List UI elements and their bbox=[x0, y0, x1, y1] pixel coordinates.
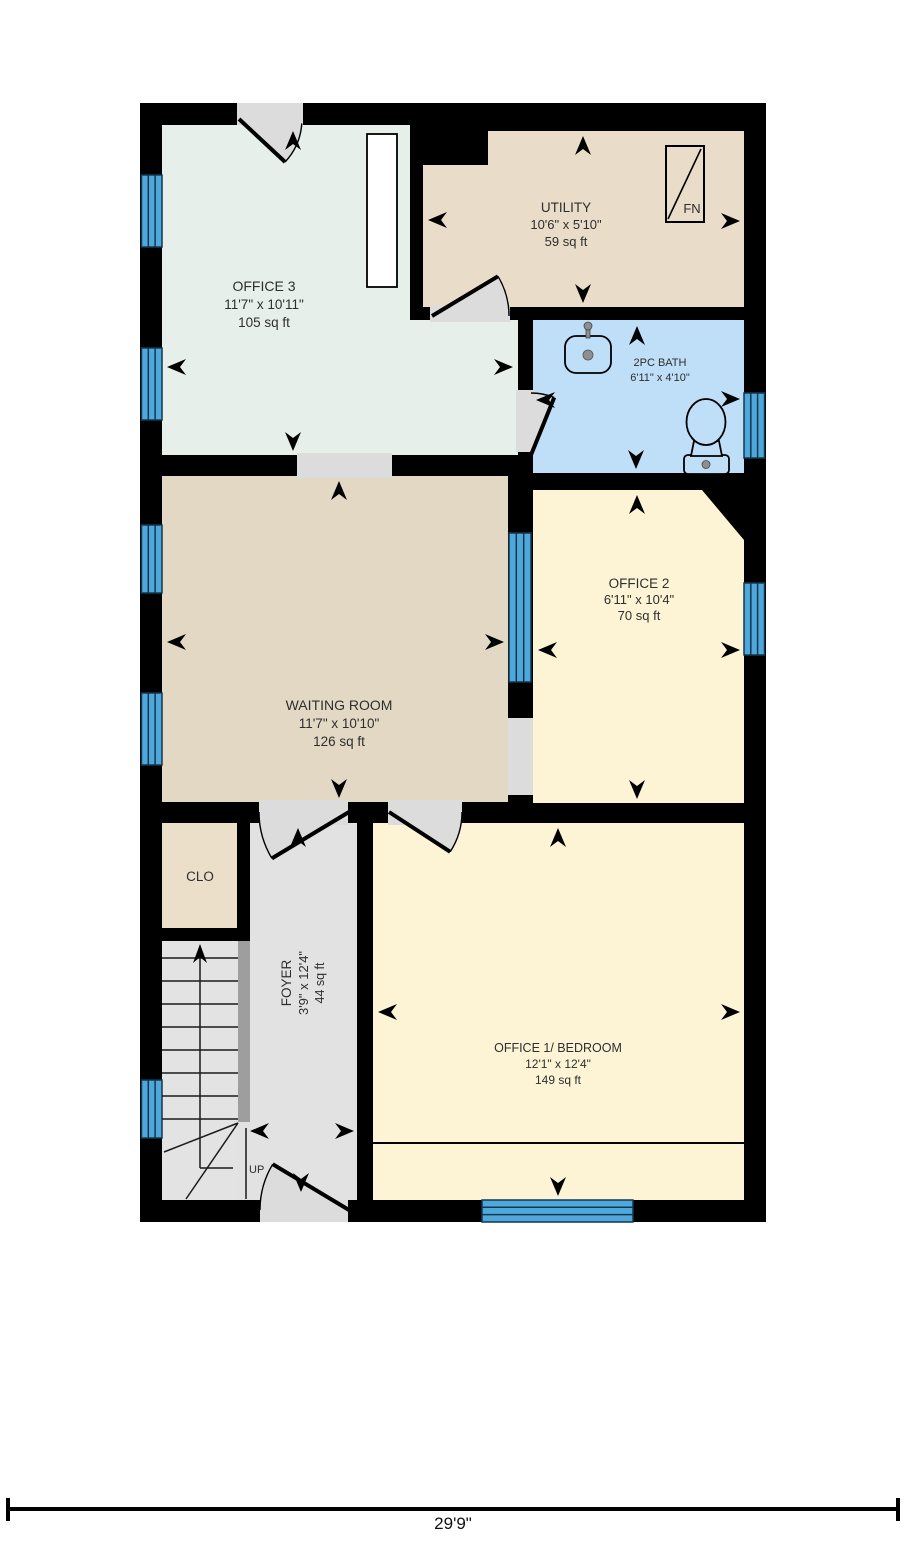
room-utility-dims: 10'6" x 5'10" bbox=[530, 217, 602, 232]
room-office2-dims: 6'11" x 10'4" bbox=[604, 592, 675, 607]
passage-opening bbox=[508, 718, 533, 795]
stair-handrail bbox=[238, 941, 250, 1122]
room-office3-area: 105 sq ft bbox=[238, 315, 290, 330]
window bbox=[142, 525, 163, 593]
interior-window bbox=[509, 533, 531, 682]
room-office1-dims: 12'1" x 12'4" bbox=[525, 1057, 591, 1071]
toilet-flush-button bbox=[702, 461, 710, 469]
toilet-bowl bbox=[687, 399, 726, 445]
room-office2-name: OFFICE 2 bbox=[609, 576, 670, 591]
room-foyer-name: FOYER bbox=[279, 960, 294, 1007]
room-foyer-dims: 3'9" x 12'4" bbox=[296, 951, 311, 1015]
room-foyer-area: 44 sq ft bbox=[313, 962, 327, 1004]
window bbox=[142, 693, 163, 765]
room-office1-name: OFFICE 1/ BEDROOM bbox=[494, 1041, 622, 1055]
room-waiting-dims: 11'7" x 10'10" bbox=[299, 716, 380, 731]
room-bath-name: 2PC BATH bbox=[634, 357, 687, 369]
scale-bar-label: 29'9" bbox=[434, 1514, 472, 1533]
room-office2-area: 70 sq ft bbox=[618, 608, 661, 623]
window bbox=[482, 1200, 633, 1222]
sink-faucet bbox=[584, 322, 592, 330]
room-utility-area: 59 sq ft bbox=[545, 234, 588, 249]
room-utility-name: UTILITY bbox=[541, 200, 591, 215]
floorplan-svg: OFFICE 3 11'7" x 10'11" 105 sq ft UTILIT… bbox=[0, 0, 906, 1541]
window bbox=[744, 583, 765, 655]
stairs-passage-floor bbox=[238, 1122, 250, 1200]
floorplan-page: OFFICE 3 11'7" x 10'11" 105 sq ft UTILIT… bbox=[0, 0, 906, 1541]
room-waiting-name: WAITING ROOM bbox=[286, 697, 393, 713]
up-label: UP bbox=[249, 1164, 264, 1176]
sink-drain bbox=[583, 350, 593, 360]
window bbox=[744, 393, 765, 458]
furnace-label: FN bbox=[683, 201, 700, 216]
window bbox=[142, 1080, 163, 1138]
built-in-closet bbox=[367, 134, 397, 287]
window bbox=[142, 175, 163, 247]
room-office1-area: 149 sq ft bbox=[535, 1073, 582, 1087]
room-office3-dims: 11'7" x 10'11" bbox=[224, 297, 304, 312]
room-bath-dims: 6'11" x 4'10" bbox=[630, 372, 690, 384]
window bbox=[142, 348, 163, 420]
room-waiting-floor bbox=[162, 476, 508, 802]
room-office2-floor bbox=[533, 490, 744, 803]
room-clo-name: CLO bbox=[186, 869, 214, 884]
passage-opening bbox=[297, 453, 392, 478]
room-waiting-area: 126 sq ft bbox=[313, 734, 365, 749]
room-office3-name: OFFICE 3 bbox=[232, 278, 295, 294]
